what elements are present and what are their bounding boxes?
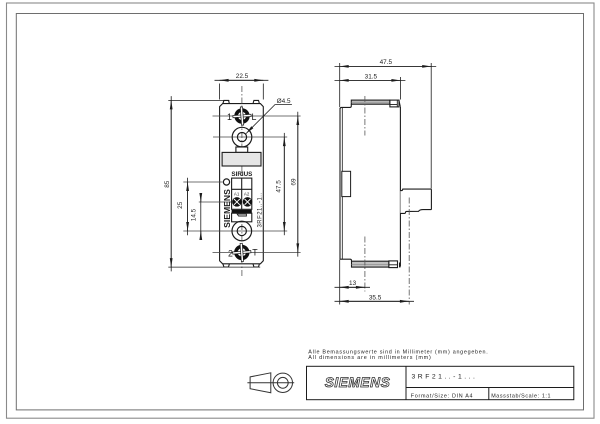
svg-text:31.5: 31.5 [365,73,378,80]
svg-text:Ø4.5: Ø4.5 [277,98,291,105]
svg-text:SIEMENS: SIEMENS [325,375,391,390]
svg-text:A2: A2 [244,192,250,197]
svg-text:25: 25 [177,201,184,209]
svg-text:SIEMENS: SIEMENS [222,189,232,228]
svg-text:A1: A1 [234,192,240,197]
svg-text:22.5: 22.5 [236,73,249,80]
svg-text:All dimensions are in millimet: All dimensions are in millimeters (mm) [308,355,431,361]
svg-text:Format/Size: DIN A4: Format/Size: DIN A4 [411,393,473,399]
svg-text:3RF21..-1..: 3RF21..-1.. [258,193,264,228]
svg-text:47.5: 47.5 [380,59,393,66]
svg-text:Massstab/Scale: 1:1: Massstab/Scale: 1:1 [491,393,551,399]
svg-text:T: T [252,247,258,257]
svg-text:14.5: 14.5 [191,208,198,221]
svg-text:2: 2 [228,249,233,259]
svg-text:69: 69 [291,178,298,186]
svg-text:1: 1 [227,112,232,122]
svg-text:SIRIUS: SIRIUS [231,171,252,178]
svg-text:47.5: 47.5 [275,180,282,193]
svg-text:3RF21..-1...: 3RF21..-1... [412,373,478,380]
svg-text:13: 13 [349,280,357,287]
svg-text:L: L [251,112,256,122]
svg-text:35.5: 35.5 [369,294,382,301]
svg-text:85: 85 [164,180,171,188]
